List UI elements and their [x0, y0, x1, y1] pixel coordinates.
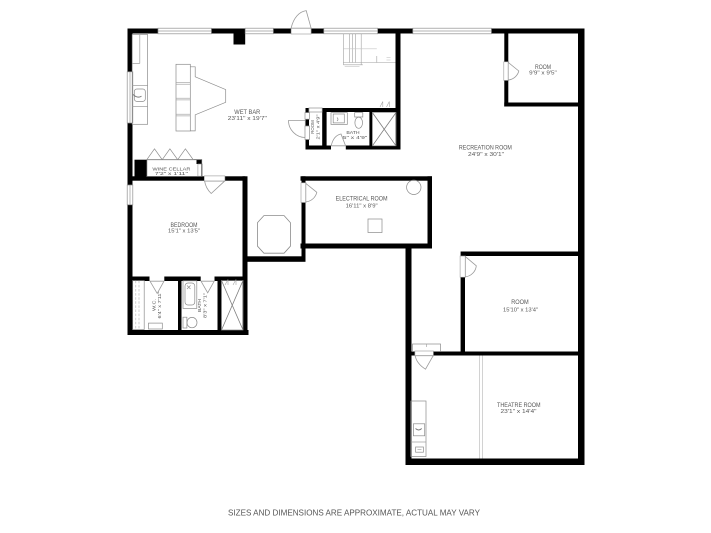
svg-text:15'10" x 13'4": 15'10" x 13'4": [503, 307, 538, 313]
svg-text:RECREATION ROOM: RECREATION ROOM: [459, 144, 512, 151]
svg-text:2'1" x 4'9": 2'1" x 4'9": [315, 114, 320, 139]
svg-text:6'4" x 7'11": 6'4" x 7'11": [157, 291, 162, 318]
svg-text:24'9" x 30'1": 24'9" x 30'1": [468, 152, 504, 158]
svg-text:23'11" x 19'7": 23'11" x 19'7": [228, 116, 267, 122]
svg-text:ROOM: ROOM: [511, 299, 529, 306]
svg-text:ROOM: ROOM: [310, 120, 315, 134]
svg-text:W.C.: W.C.: [152, 299, 157, 311]
svg-text:7'2" x 1'11": 7'2" x 1'11": [155, 171, 188, 176]
svg-text:16'11" x 8'9": 16'11" x 8'9": [346, 203, 378, 209]
svg-text:WET BAR: WET BAR: [234, 109, 260, 116]
svg-text:BATH: BATH: [197, 299, 202, 312]
svg-text:23'1" x 14'4": 23'1" x 14'4": [501, 409, 537, 415]
svg-text:9'9" x 9'5": 9'9" x 9'5": [529, 70, 557, 76]
svg-text:8'3" x 7'1": 8'3" x 7'1": [202, 293, 207, 318]
svg-text:15'1" x 13'5": 15'1" x 13'5": [168, 229, 200, 235]
svg-text:ELECTRICAL ROOM: ELECTRICAL ROOM: [336, 195, 388, 202]
svg-text:SIZES AND DIMENSIONS ARE APPRO: SIZES AND DIMENSIONS ARE APPROXIMATE, AC…: [228, 507, 480, 517]
